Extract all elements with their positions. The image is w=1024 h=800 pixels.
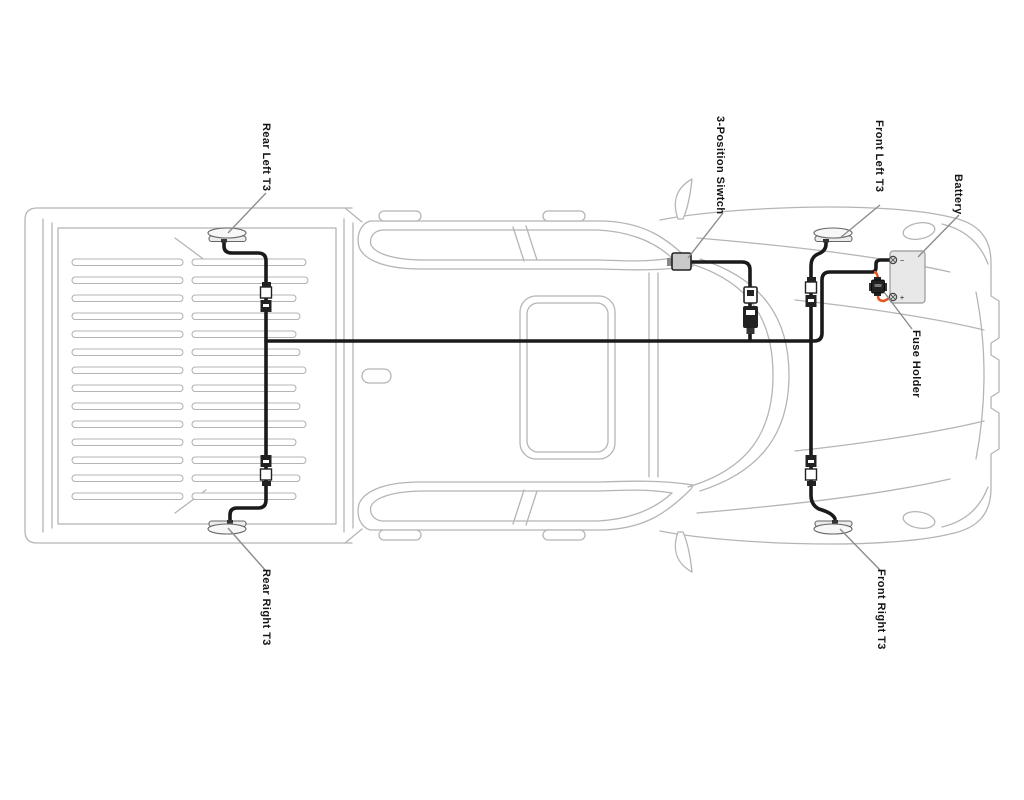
wiring-diagram-canvas: − + — [0, 0, 1024, 800]
door-handle — [543, 211, 585, 221]
wiring-diagram-page: − + — [0, 0, 1024, 800]
side-mirror — [675, 179, 692, 219]
front-lower-connector — [806, 455, 817, 486]
truck-front-outline — [660, 207, 999, 544]
truck-outline — [25, 179, 999, 572]
rear-left-t3-light — [208, 228, 246, 243]
label-front-left-t3: Front Left T3 — [873, 120, 885, 192]
door-handle — [379, 530, 421, 540]
sunroof — [520, 296, 615, 459]
battery-positive-mark: + — [900, 295, 904, 302]
label-battery: Battery — [952, 174, 964, 215]
label-front-right-t3: Front Right T3 — [875, 569, 887, 650]
front-upper-connector — [806, 277, 817, 307]
leader-switch — [688, 213, 723, 258]
battery: − + — [889, 251, 925, 303]
label-rear-right-t3: Rear Right T3 — [260, 569, 272, 646]
rear-lower-connector — [261, 455, 272, 486]
marker-lights — [208, 228, 852, 534]
rear-right-t3-light — [208, 520, 246, 534]
leader-lines — [228, 193, 959, 571]
bed-slats — [72, 259, 308, 500]
leader-front-left — [840, 205, 880, 238]
front-right-t3-light — [814, 520, 852, 534]
side-mirror — [675, 532, 692, 572]
leader-battery — [918, 215, 959, 257]
label-rear-left-t3: Rear Left T3 — [260, 123, 272, 191]
switch-connectors — [743, 287, 758, 334]
door-handle — [379, 211, 421, 221]
door-handle — [543, 530, 585, 540]
label-fuse-holder: Fuse Holder — [910, 330, 922, 398]
three-position-switch — [667, 253, 691, 270]
battery-negative-mark: − — [900, 258, 904, 265]
rear-upper-connector — [261, 282, 272, 312]
front-left-t3-light — [814, 228, 852, 243]
leader-front-right — [840, 529, 880, 570]
label-3-position-switch: 3-Position Siwtch — [714, 116, 726, 214]
leader-rear-right — [228, 528, 266, 571]
switch-wire — [691, 262, 750, 339]
leader-rear-left — [228, 193, 266, 233]
